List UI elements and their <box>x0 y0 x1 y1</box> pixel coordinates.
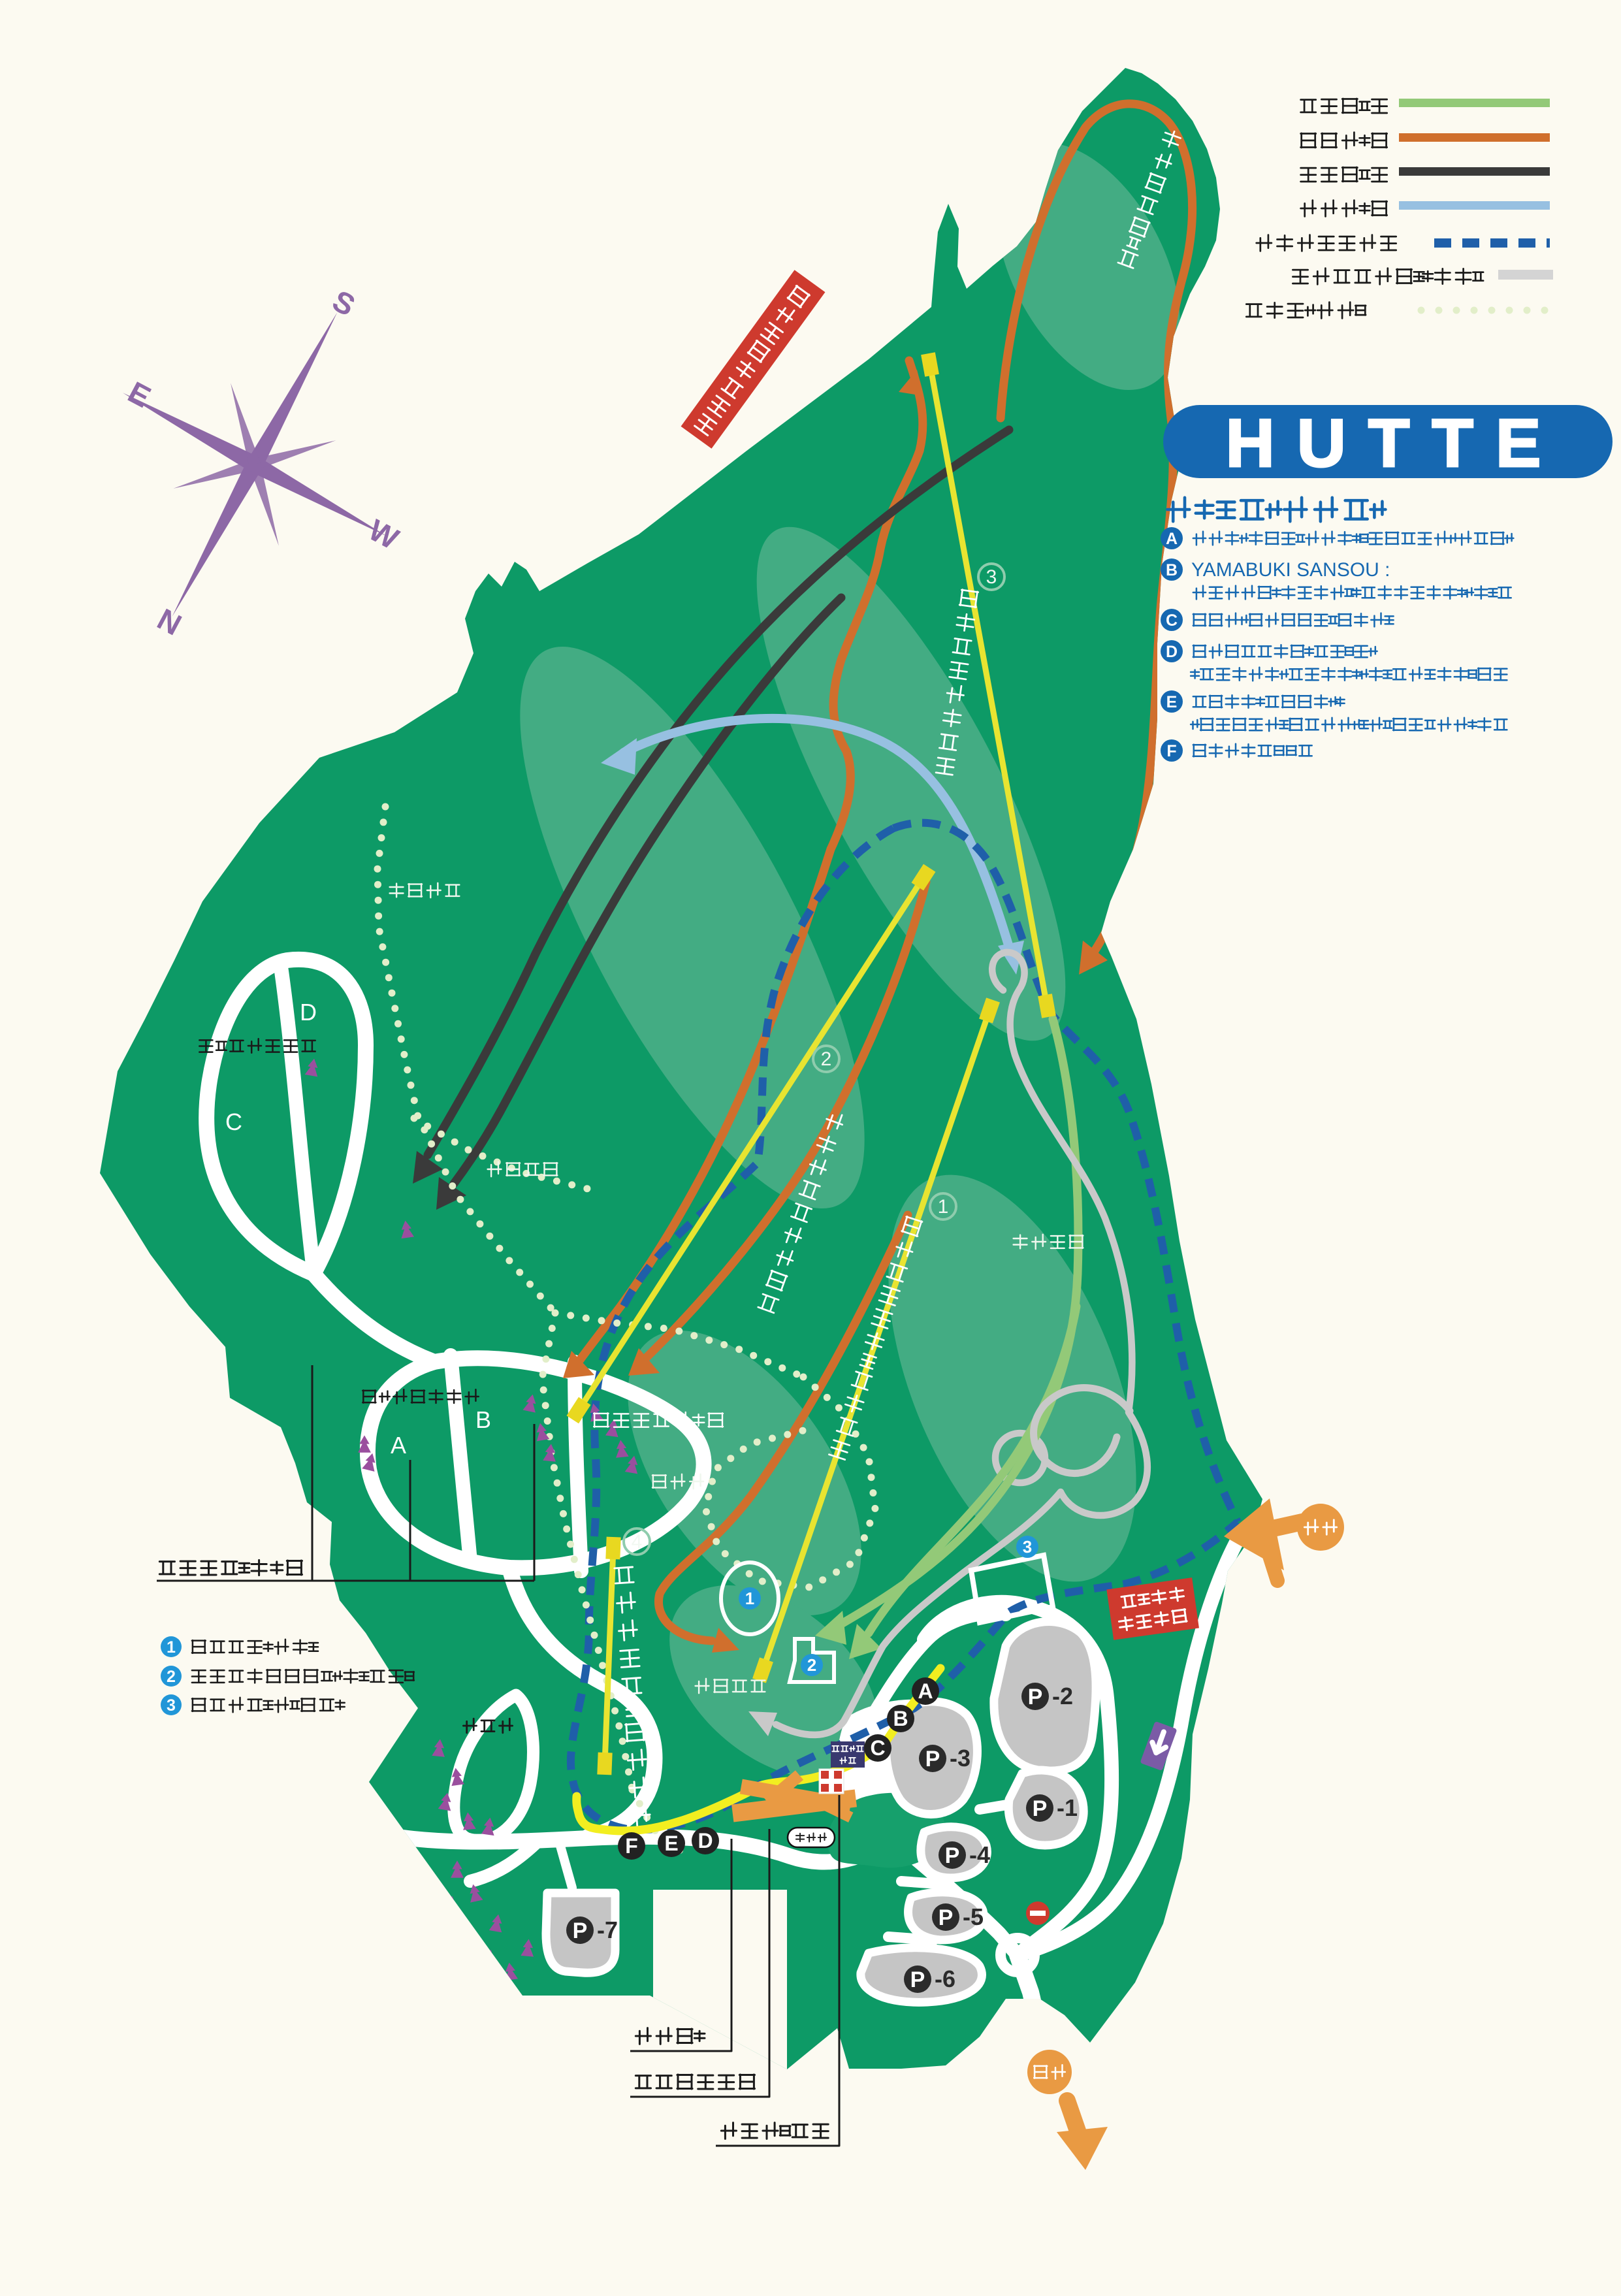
svg-text:-2: -2 <box>1052 1683 1073 1709</box>
svg-text:1: 1 <box>938 1196 949 1218</box>
svg-text:HUTTE: HUTTE <box>1226 406 1564 481</box>
svg-text:P: P <box>945 1843 960 1868</box>
svg-text:YAMABUKI SANSOU :: YAMABUKI SANSOU : <box>1191 559 1390 581</box>
svg-text:2: 2 <box>821 1048 832 1070</box>
svg-text:P: P <box>910 1967 925 1992</box>
svg-text:P: P <box>1028 1685 1043 1709</box>
svg-text:1: 1 <box>167 1638 176 1657</box>
svg-text:F: F <box>625 1834 638 1858</box>
svg-text:D: D <box>1166 643 1178 661</box>
svg-text:B: B <box>1166 561 1178 579</box>
svg-text:F: F <box>1166 742 1176 760</box>
svg-text:-7: -7 <box>597 1916 618 1943</box>
svg-text:B: B <box>475 1406 491 1433</box>
svg-text:P: P <box>573 1918 588 1943</box>
svg-text:A: A <box>391 1432 406 1459</box>
svg-text:3: 3 <box>986 566 997 588</box>
svg-text:C: C <box>1166 611 1178 630</box>
svg-text:D: D <box>698 1829 713 1852</box>
svg-text:B: B <box>893 1707 908 1730</box>
svg-text:-1: -1 <box>1057 1794 1078 1821</box>
svg-text:A: A <box>1166 530 1178 548</box>
svg-text:E: E <box>664 1832 678 1855</box>
svg-text:C: C <box>870 1736 885 1760</box>
svg-text:4: 4 <box>632 1531 643 1553</box>
svg-text:P: P <box>1033 1796 1048 1821</box>
svg-text:-4: -4 <box>969 1841 990 1868</box>
svg-text:A: A <box>918 1679 933 1703</box>
svg-text:-6: -6 <box>935 1965 955 1992</box>
svg-text:P: P <box>925 1747 940 1771</box>
svg-text:2: 2 <box>807 1655 816 1675</box>
svg-text:1: 1 <box>745 1589 754 1608</box>
svg-text:E: E <box>1166 693 1178 711</box>
svg-text:P: P <box>939 1905 954 1930</box>
svg-text:C: C <box>225 1108 242 1135</box>
svg-text:3: 3 <box>167 1696 176 1715</box>
svg-text:D: D <box>300 999 317 1026</box>
svg-text:-3: -3 <box>950 1745 971 1771</box>
svg-text:3: 3 <box>1023 1537 1032 1557</box>
svg-text:-5: -5 <box>963 1903 984 1930</box>
svg-text:2: 2 <box>167 1668 176 1686</box>
